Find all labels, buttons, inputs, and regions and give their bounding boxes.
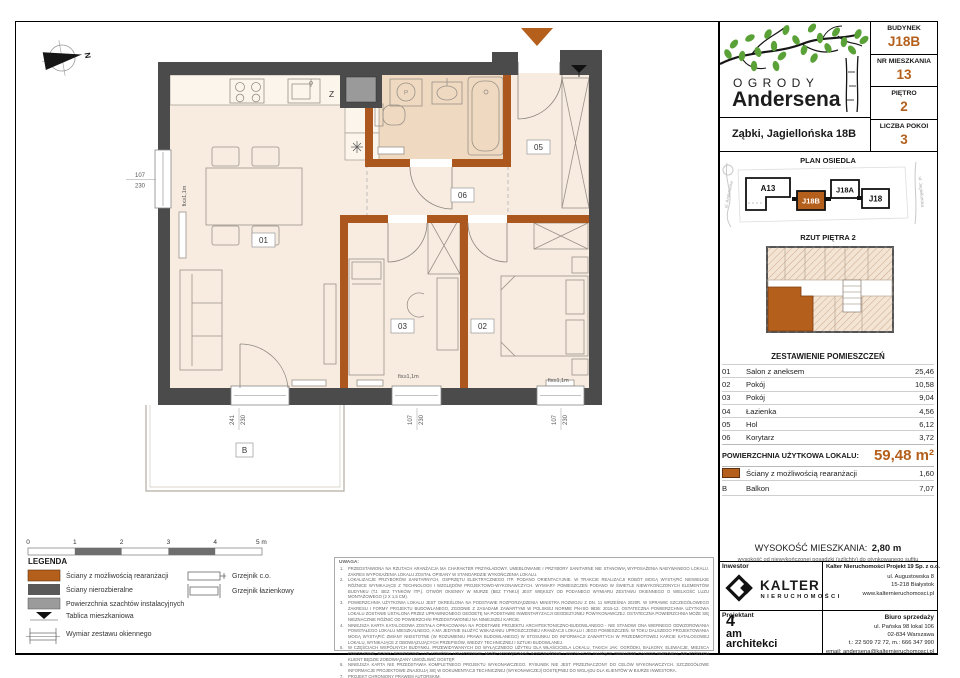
legend-swatch-rearrangeable <box>28 570 60 581</box>
svg-text:107: 107 <box>552 414 558 425</box>
note-item: PROJEKT CHRONIONY PRAWEM AUTORSKIM. <box>348 674 709 678</box>
brand-line2: Andersena <box>732 88 841 112</box>
legend-radiator-co-icon <box>188 572 226 580</box>
note-item: PRZEDSTAWIONA NA RZUTACH ARANŻACJA MA CH… <box>348 566 709 577</box>
building-a13-label: A13 <box>761 184 776 193</box>
kitchen-counter <box>170 75 342 105</box>
table-row: 03Pokój9,04 <box>722 391 934 404</box>
legend-item-label: Grzejnik łazienkowy <box>232 586 294 597</box>
info-value-pokoje: 3 <box>870 132 938 147</box>
window-room03 <box>392 386 441 405</box>
info-value-budynek: J18B <box>870 34 938 49</box>
window-left <box>155 150 171 208</box>
window-room02 <box>537 386 584 405</box>
room-label-05: 05 <box>534 143 543 152</box>
stair-core <box>843 280 861 312</box>
svg-text:0: 0 <box>26 539 30 546</box>
building-a13-shape <box>746 178 790 210</box>
table-row: 01Salon z aneksem25,46 <box>722 364 934 377</box>
floor-plan: P <box>126 28 602 491</box>
note-item: LOKALIZACJE PRZYBORÓW SANITARNYCH, OSPRZ… <box>348 577 709 600</box>
info-label-pokoje: LICZBA POKOI <box>870 123 938 130</box>
walls-area-row: Ściany z możliwością rearanżacji 1,60 <box>722 466 934 481</box>
room-label-01: 01 <box>259 236 268 245</box>
entrance-marker-icon <box>521 28 553 46</box>
legend-item-label: Powierzchnia szachtów instalacyjnych <box>66 599 184 610</box>
scale-bar: 0 1 2 3 4 5 m <box>26 539 267 555</box>
floor-overview-drawing <box>767 247 893 332</box>
street-label-right: ul. Jagiellońska <box>918 176 926 208</box>
legend-radiator-bath-icon <box>188 584 220 598</box>
room-label-02: 02 <box>478 322 487 331</box>
installation-shaft <box>340 70 382 108</box>
svg-text:3: 3 <box>167 539 171 546</box>
table-row: 06Korytarz3,72 <box>722 430 934 443</box>
site-plan-title: PLAN OSIEDLA <box>718 156 938 165</box>
north-label: N <box>83 52 93 59</box>
notes-list: PRZEDSTAWIONA NA RZUTACH ARANŻACJA MA CH… <box>339 566 709 678</box>
bathroom-floor <box>373 75 503 159</box>
legend-item-label: Wymiar zestawu okiennego <box>66 629 152 640</box>
total-area-label: POWIERZCHNIA UŻYTKOWA LOKALU: <box>722 451 859 460</box>
svg-text:230: 230 <box>241 414 247 425</box>
svg-text:4: 4 <box>213 539 217 546</box>
washer-label: P <box>404 90 408 97</box>
info-label-budynek: BUDYNEK <box>870 25 938 32</box>
height-note: wysokość od niewykończonej posadzki (szl… <box>718 557 938 563</box>
sales-office-address: ul. Pańska 98 lokal 106 02-834 Warszawa … <box>812 623 934 656</box>
birch-trunk <box>846 56 858 112</box>
kitchen-cabinets <box>345 107 379 160</box>
total-area-row: POWIERZCHNIA UŻYTKOWA LOKALU: 59,48 m² <box>722 444 934 466</box>
height-info: WYSOKOŚĆ MIESZKANIA: 2,80 m wysokość od … <box>718 538 938 563</box>
note-item: W CZĘŚCIACH WSPÓLNYCH BUDYNKU, PRZEWIDYW… <box>348 645 709 662</box>
svg-text:241: 241 <box>230 414 236 425</box>
legend-title: LEGENDA <box>28 557 67 566</box>
legend-swatch-shaft <box>28 598 60 609</box>
project-address: Ząbki, Jagiellońska 18B <box>718 117 870 151</box>
info-label-pietro: PIĘTRO <box>870 90 938 97</box>
building-j18b-label: J18B <box>802 197 821 206</box>
note-item: POWIERZCHNIA UŻYTKOWA LOKALU JEST OKREŚL… <box>348 600 709 623</box>
kalter-logo-text: KALTER <box>760 578 820 593</box>
legend-item-label: Grzejnik c.o. <box>232 571 271 582</box>
svg-text:230: 230 <box>419 414 425 425</box>
company-address: ul. Augustowska 8 15-218 Białystok www.k… <box>826 573 934 598</box>
compass-icon: N <box>39 35 94 79</box>
height-value: 2,80 m <box>872 543 902 554</box>
legend-swatch-structural <box>28 584 60 595</box>
street-label-left: ul. Andersena <box>723 180 734 208</box>
kalter-logo-icon <box>728 577 753 600</box>
fix-note-win02: fix≥1,1m <box>548 378 569 384</box>
legend-item-label: Tablica mieszkaniowa <box>66 611 134 622</box>
legend-item-label: Ściany nierozbieralne <box>66 585 133 596</box>
height-label: WYSOKOŚĆ MIESZKANIA: <box>755 543 868 553</box>
table-row: 02Pokój10,58 <box>722 377 934 390</box>
svg-text:230: 230 <box>563 414 569 425</box>
rooms-table-title: ZESTAWIENIE POMIESZCZEŃ <box>722 352 934 364</box>
rooms-table: ZESTAWIENIE POMIESZCZEŃ 01Salon z anekse… <box>722 352 934 496</box>
floor-overview-title: RZUT PIĘTRA 2 <box>718 233 938 242</box>
walls-swatch <box>722 468 740 478</box>
apartment-card-page: N <box>0 0 960 678</box>
scale-end-label: 5 m <box>256 539 267 546</box>
notes-box: UWAGA: PRZEDSTAWIONA NA RZUTACH ARANŻACJ… <box>334 557 714 651</box>
kitchen-z-label: Z <box>329 89 334 99</box>
building-j18-label: J18 <box>869 195 883 204</box>
table-row: 05Hol6,12 <box>722 417 934 430</box>
legend-infoboard-icon <box>30 612 58 620</box>
fix-note-win03: fix≥1,1m <box>398 374 419 380</box>
svg-text:107: 107 <box>408 414 414 425</box>
fix-note-left: fix≥1,1m <box>182 185 188 206</box>
info-label-nr: NR MIESZKANIA <box>870 58 938 65</box>
balcony-label: B <box>242 446 247 455</box>
balcony-door-window <box>231 386 289 405</box>
svg-text:1: 1 <box>73 539 77 546</box>
footer-mid-line <box>718 610 938 611</box>
building-j18a-label: J18A <box>836 186 855 195</box>
sales-office-label: Biuro sprzedaży <box>826 614 934 621</box>
investor-label: Inwestor <box>722 563 749 570</box>
svg-text:230: 230 <box>135 184 146 190</box>
room-label-06: 06 <box>458 191 467 200</box>
info-value-nr: 13 <box>870 67 938 82</box>
total-area-value: 59,48 m² <box>874 447 934 464</box>
table-row: 04Łazienka4,56 <box>722 404 934 417</box>
company-name: Kalter Nieruchomości Projekt 19 Sp. z o.… <box>826 564 934 570</box>
legend-item-label: Ściany z możliwością rearanżacji <box>66 571 168 582</box>
note-item: NINIEJSZA KARTA NIE PRZEDSTAWIA KOMPLETN… <box>348 662 709 673</box>
room-label-03: 03 <box>398 322 407 331</box>
svg-text:2: 2 <box>120 539 124 546</box>
note-item: NINIEJSZA KARTA KATALOGOWA ZOSTAŁA OPRAC… <box>348 623 709 646</box>
notes-title: UWAGA: <box>339 560 709 565</box>
site-plan-map: A13 J18B J18A J18 ul. Andersena ul. Jagi… <box>723 162 925 227</box>
header-bottom-line <box>718 151 938 152</box>
designer-logo: 4 am architekci <box>726 615 777 650</box>
info-value-pietro: 2 <box>870 99 938 114</box>
legend-window-dim-icon <box>26 628 60 644</box>
balcony-area-row: B Balkon 7,07 <box>722 480 934 496</box>
svg-text:107: 107 <box>135 173 146 179</box>
